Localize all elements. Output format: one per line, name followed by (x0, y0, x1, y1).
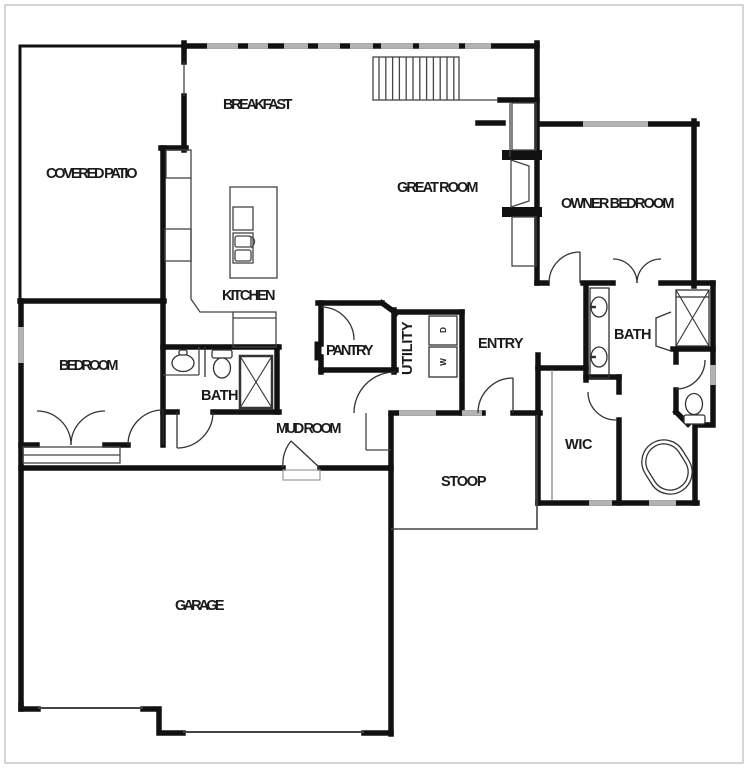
kitchen-sink (233, 233, 253, 263)
range (233, 312, 276, 347)
toilet-tank (212, 350, 232, 358)
label-great-room: GREAT ROOM (397, 180, 479, 196)
sink-faucet (179, 350, 187, 355)
stoop-outline (391, 415, 537, 529)
utility-door (354, 372, 395, 413)
floor-plan-drawing: COVERED PATIO BREAKFAST GREAT ROOM OWNER… (0, 0, 748, 768)
label-wic: WIC (565, 437, 593, 453)
label-garage: GARAGE (175, 598, 225, 614)
label-covered-patio: COVERED PATIO (46, 166, 138, 182)
refrigerator (166, 150, 191, 178)
label-dryer: D (439, 327, 448, 333)
fireplace (511, 160, 529, 207)
wic-door (588, 392, 616, 420)
door-threshold (283, 470, 320, 480)
image-border (5, 5, 743, 763)
kitchen-island (230, 187, 277, 278)
pantry-door (321, 307, 354, 340)
label-pantry: PANTRY (326, 343, 374, 359)
sink (172, 355, 194, 372)
label-breakfast: BREAKFAST (223, 97, 293, 113)
owner-bedroom-door (549, 252, 580, 283)
label-washer: W (439, 358, 448, 366)
toilet-tank (684, 415, 705, 424)
bedroom-door (128, 410, 163, 445)
floor-plan: COVERED PATIO BREAKFAST GREAT ROOM OWNER… (0, 0, 748, 768)
label-hall-bath: BATH (201, 388, 239, 404)
owner-bath-doors (613, 259, 661, 283)
steps (366, 413, 391, 450)
windows (21, 46, 713, 503)
label-stoop: STOOP (441, 474, 487, 490)
front-door (478, 378, 513, 413)
label-owner-bedroom: OWNER BEDROOM (561, 196, 675, 212)
label-bedroom: BEDROOM (59, 358, 119, 374)
owner-bath-fixtures (590, 288, 709, 502)
stairs (373, 57, 510, 157)
garage-entry-door (283, 441, 320, 468)
toilet (686, 394, 703, 415)
label-mud-room: MUD ROOM (276, 421, 342, 437)
toilet-room-door (676, 360, 705, 389)
exterior-walls (20, 43, 713, 734)
hall-bath-door (177, 412, 213, 448)
toilet (214, 358, 231, 378)
cooktop (165, 229, 191, 261)
walk-in-shower (656, 290, 709, 351)
built-in-cabinet (512, 217, 536, 266)
label-utility: UTILITY (400, 321, 416, 375)
built-in-cabinet (512, 103, 536, 150)
laundry (429, 316, 457, 377)
shower-door (656, 312, 671, 351)
dishwasher (233, 207, 253, 230)
thin-details (23, 57, 552, 732)
closet (23, 447, 120, 463)
label-kitchen: KITCHEN (222, 288, 276, 304)
closet-doors (37, 411, 105, 445)
label-entry: ENTRY (478, 336, 524, 352)
bathtub (634, 432, 701, 503)
label-owner-bath: BATH (614, 327, 652, 343)
shower (240, 356, 272, 408)
